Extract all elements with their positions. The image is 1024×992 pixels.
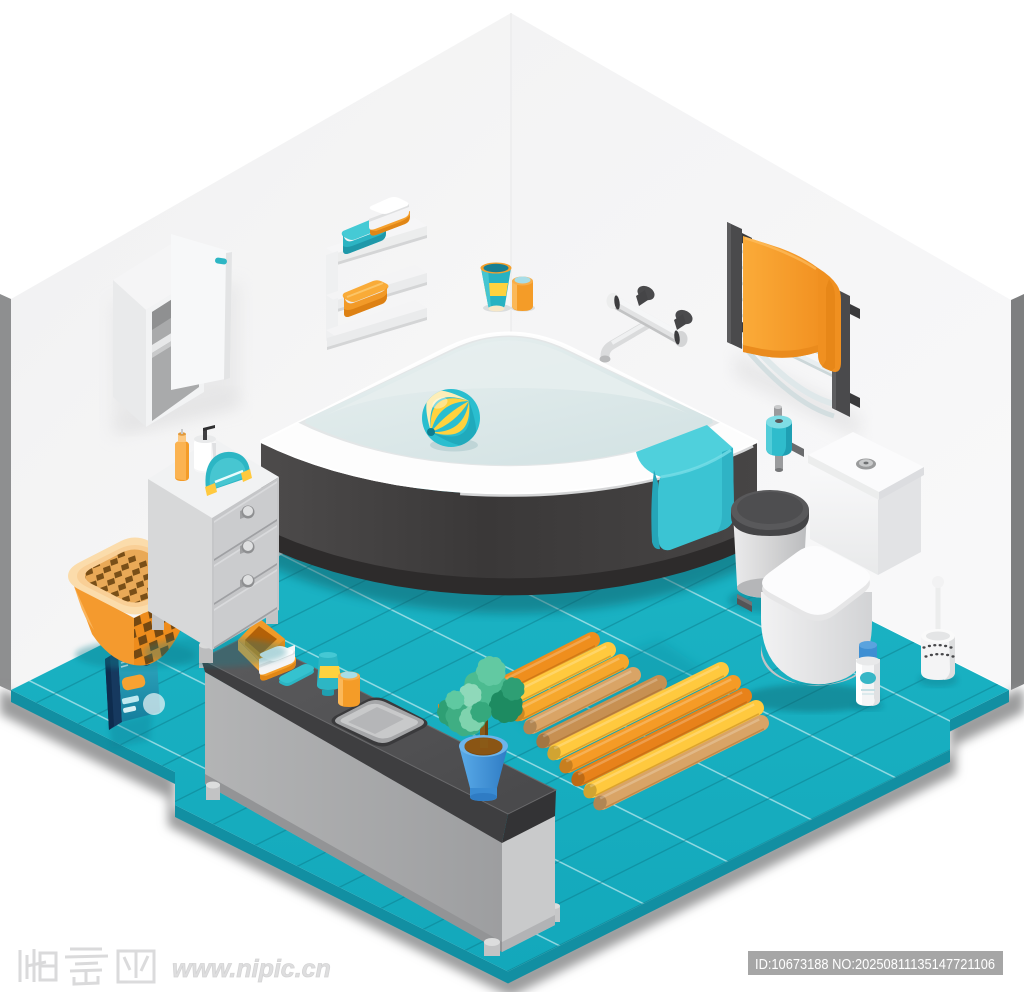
svg-text:ID:10673188 NO:202508111351477: ID:10673188 NO:20250811135147721106: [755, 956, 995, 973]
svg-text:www.nipic.cn: www.nipic.cn: [172, 955, 331, 983]
